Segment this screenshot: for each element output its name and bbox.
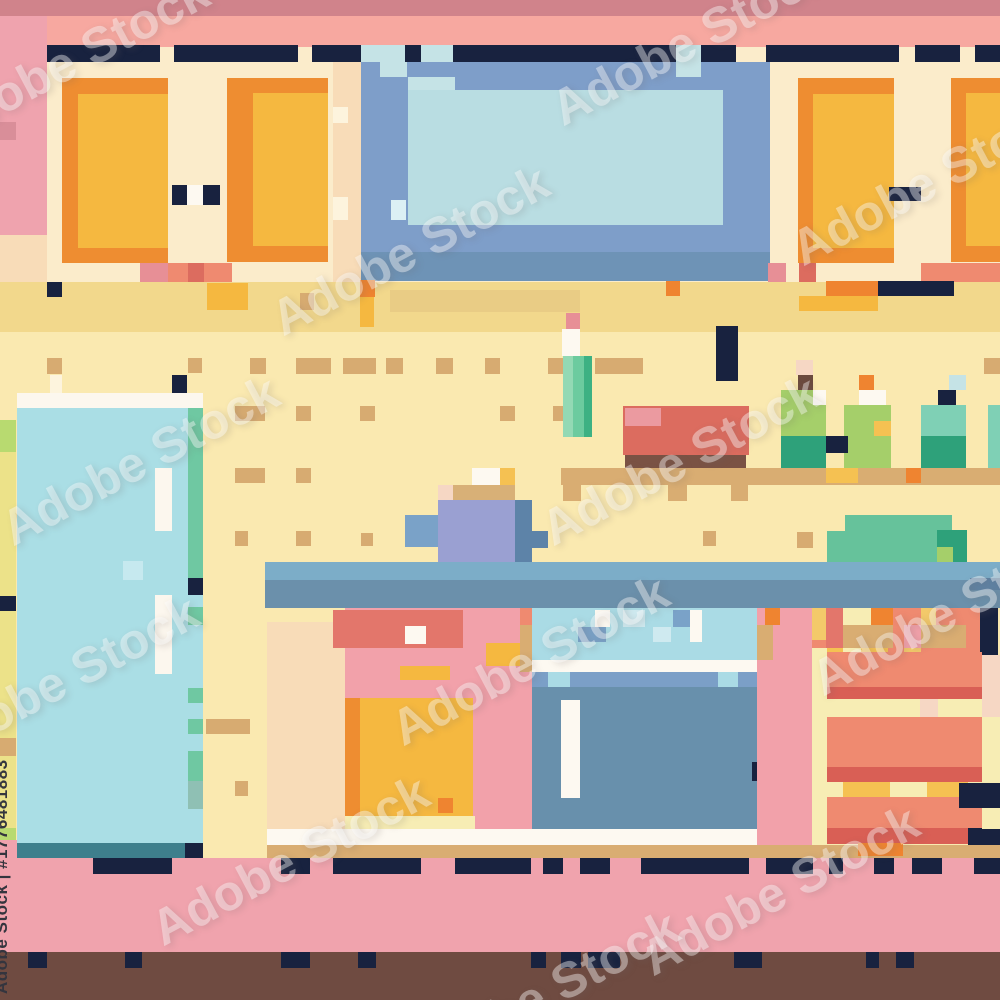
drawer-separator	[827, 699, 982, 717]
brick-dash	[386, 358, 403, 374]
pot-handle	[532, 531, 548, 548]
top-trim-dash	[453, 45, 676, 62]
counter-clutter	[843, 608, 871, 625]
drawer-edge	[827, 767, 982, 782]
left-strip-tan	[0, 738, 16, 756]
window-sill	[358, 252, 770, 281]
counter-clutter	[843, 625, 893, 648]
brick-dash	[436, 358, 453, 374]
shelf-jar-partial	[988, 405, 1000, 468]
band-accent	[666, 281, 680, 296]
drawer-unit-side-dark	[969, 829, 1000, 845]
stove-trim	[532, 660, 757, 672]
window-glass-shine	[391, 200, 406, 220]
window-tab	[361, 45, 405, 62]
brick-dash	[47, 358, 62, 374]
baseboard-dash	[974, 858, 1000, 874]
fridge-base-navy	[185, 843, 203, 858]
top-trim-dash	[975, 45, 1000, 62]
shelf-jar-highlight	[813, 390, 826, 405]
shelf-jar-cap	[938, 390, 956, 405]
counter-clutter	[921, 625, 966, 648]
brick-dash	[235, 781, 248, 796]
shelf-jar-label	[874, 421, 891, 436]
stock-id-watermark: Adobe Stock | #1776481883	[0, 759, 12, 994]
fridge-trim-gray	[188, 781, 203, 809]
floor-dash	[896, 952, 914, 968]
cabinet-door-panel	[966, 93, 1000, 246]
counter-top	[265, 562, 1000, 580]
stove-door-notch	[718, 672, 738, 687]
pot-lid	[453, 485, 515, 500]
wall-pillar-light	[333, 197, 348, 220]
counter-clutter	[921, 608, 936, 625]
floor-dash	[281, 952, 310, 968]
left-strip-lime	[0, 420, 16, 452]
pot-side-shade	[515, 500, 532, 562]
pink-cabinet-drawer	[333, 610, 463, 648]
wall-bottle-shade	[584, 356, 592, 437]
top-trim-dash	[405, 45, 421, 62]
baseboard-dash	[93, 858, 172, 874]
brick-dash	[235, 468, 265, 483]
cabinet-door-panel	[78, 94, 168, 248]
pink-cabinet-side	[267, 622, 345, 845]
shelf-jar-highlight	[859, 390, 886, 405]
brick-dash	[235, 406, 265, 421]
stove-knob	[673, 610, 690, 627]
cabinet-accent	[799, 263, 816, 282]
shelf-bracket	[731, 485, 748, 501]
pink-cabinet-accent	[486, 643, 520, 666]
coffee-machine-highlight	[625, 408, 661, 426]
cabinet-accent	[921, 263, 1000, 282]
fridge-trim	[188, 719, 203, 734]
pink-cabinet-door-notch	[438, 798, 453, 813]
drawer-unit-side	[982, 808, 1000, 829]
baseboard-dash	[874, 858, 894, 874]
cabinet-handle	[172, 185, 187, 205]
brick-dash	[206, 719, 250, 734]
counter-clutter	[790, 608, 812, 666]
top-trim-dash	[915, 45, 960, 62]
drawer	[827, 717, 982, 767]
bottle-cap	[562, 329, 580, 356]
stove-knob	[623, 610, 645, 627]
pink-cabinet-door-sill	[345, 816, 475, 829]
brick-dash	[235, 531, 248, 546]
counter-clutter-dark	[980, 608, 998, 655]
counter-clutter	[812, 608, 826, 640]
left-strip-navy	[0, 596, 16, 611]
wall-shelf-segment	[906, 468, 921, 483]
shelf-jar-cap	[859, 375, 874, 390]
drawer-edge	[827, 828, 968, 844]
floor-dash	[28, 952, 47, 968]
left-strip	[0, 332, 16, 420]
drawer-unit-frame	[812, 648, 827, 845]
band-accent	[300, 293, 314, 310]
band-accent	[360, 280, 375, 297]
pink-cabinet-accent	[400, 666, 450, 680]
brick-dash	[548, 358, 563, 374]
wall-shelf	[561, 468, 1000, 485]
shelf-jar-base	[781, 436, 826, 468]
baseboard-dash	[455, 858, 531, 874]
window-glass-step	[408, 77, 455, 90]
window-glass	[408, 90, 723, 225]
cabinet-handle	[187, 185, 203, 205]
top-trim-dash	[701, 45, 736, 62]
stove-knob	[578, 627, 606, 642]
stove-knob	[595, 610, 610, 627]
brick-dash	[797, 532, 813, 548]
drawer-edge	[827, 687, 982, 699]
pot-handle	[405, 515, 438, 547]
stove-door-handle	[561, 700, 580, 798]
top-trim-dash	[312, 45, 361, 62]
wall-dash-navy	[47, 282, 62, 297]
baseboard-dash	[912, 858, 942, 874]
wall-upper-band	[0, 16, 1000, 47]
window-tab	[380, 62, 407, 77]
pot-body	[438, 500, 515, 562]
drawer-separator-accent	[843, 782, 890, 797]
band-accent	[799, 296, 878, 311]
baseboard-dash	[829, 858, 843, 874]
cabinet-accent	[768, 263, 786, 282]
fridge-vent	[50, 375, 62, 393]
shelf-jar	[921, 405, 966, 436]
cabinet-handle	[203, 185, 220, 205]
shelf-bracket	[668, 485, 687, 501]
brick-dash	[500, 406, 515, 421]
wall-pillar-light	[333, 107, 348, 123]
drawer-unit-side-dark	[959, 783, 1000, 808]
shelf-jar-label-dark	[826, 436, 848, 453]
band-accent	[826, 281, 878, 296]
window-tab	[676, 45, 701, 77]
top-trim-dash	[766, 45, 899, 62]
floor-dash	[531, 952, 546, 968]
cabinet-accent	[188, 263, 204, 282]
window-tab	[421, 45, 453, 62]
baseboard-dash	[543, 858, 563, 874]
cabinet-accent	[204, 263, 232, 282]
wall-pillar	[333, 62, 361, 282]
fridge-trim	[188, 751, 203, 781]
coffee-machine-base	[625, 455, 746, 468]
cabinet-accent	[140, 263, 168, 282]
fridge-trim	[188, 408, 203, 578]
shelf-jar-cap	[798, 375, 813, 390]
counter-planter-lime	[937, 547, 953, 562]
stove-left-column	[520, 672, 532, 829]
pipe	[716, 326, 738, 381]
brick-dash	[188, 358, 202, 373]
stove-left-accent	[520, 608, 532, 625]
gap-accent	[757, 625, 773, 660]
left-wall-lower	[0, 235, 47, 282]
fridge-trim	[188, 688, 203, 703]
fridge-trim-navy	[188, 578, 203, 595]
top-trim-dash	[174, 45, 298, 62]
gap-accent	[765, 608, 780, 625]
wall-shelf-segment	[826, 468, 858, 483]
fridge-trim	[188, 607, 203, 625]
drawer-unit-side	[982, 717, 1000, 783]
shelf-jar-cap-top	[949, 375, 966, 390]
fridge-handle	[155, 595, 172, 674]
band-accent	[207, 283, 248, 310]
brick-dash	[360, 406, 375, 421]
cabinet-accent	[168, 263, 188, 282]
stove-door-notch	[548, 672, 570, 687]
left-wall-accent	[0, 122, 16, 140]
shelf-jar-base	[921, 436, 966, 468]
brick-dash	[703, 531, 716, 546]
counter-front	[265, 580, 1000, 608]
brick-dash	[296, 531, 311, 546]
floor-dash	[734, 952, 762, 968]
shelf-jar-cap-top	[796, 360, 813, 375]
band-shade	[390, 290, 580, 312]
band-accent	[360, 297, 374, 327]
cabinet-door-panel	[813, 94, 894, 248]
stove-knob	[690, 610, 702, 642]
top-trim-dash	[47, 45, 160, 62]
baseboard-dash	[580, 858, 610, 874]
bottle-cap	[566, 313, 580, 329]
brick-dash	[984, 358, 1000, 374]
wall-bottle-highlight	[563, 356, 573, 437]
brick-dash	[595, 358, 643, 374]
fridge-body	[17, 408, 203, 843]
stove-left-accent	[520, 625, 532, 672]
brick-dash	[296, 468, 311, 483]
shelf-jar	[844, 405, 891, 468]
floor	[0, 952, 1000, 1000]
floor-dash	[866, 952, 879, 968]
fridge-shine	[123, 561, 143, 580]
pink-cabinet-knob	[405, 626, 426, 644]
brick-dash	[343, 358, 376, 374]
floor-dash	[588, 952, 620, 968]
fridge-top	[17, 393, 203, 408]
stove-knob	[653, 627, 671, 642]
drawer	[827, 652, 982, 687]
fridge-dash	[172, 375, 187, 393]
base-orange-step	[858, 843, 903, 856]
drawer-separator-notch	[920, 699, 938, 717]
cabinet-handle	[889, 187, 921, 201]
wall-top-band	[0, 0, 1000, 16]
pink-cabinet-door-panel	[360, 698, 473, 816]
counter-planter	[845, 515, 952, 562]
fridge-base	[17, 843, 185, 858]
counter-shade	[970, 578, 1000, 590]
base-white-band	[267, 829, 781, 845]
cabinet-door-panel	[253, 93, 328, 246]
brick-dash	[296, 406, 311, 421]
brick-dash	[361, 533, 373, 546]
brick-dash	[250, 358, 266, 374]
baseboard-dash	[766, 858, 813, 874]
floor-dash	[561, 952, 581, 968]
brick-dash	[485, 358, 500, 374]
floor-dash	[358, 952, 376, 968]
brick-dash	[296, 358, 331, 374]
pixel-art-kitchen-scene: Adobe StockAdobe StockAdobe StockAdobe S…	[0, 0, 1000, 1000]
baseboard-dash	[333, 858, 421, 874]
floor-dash	[125, 952, 142, 968]
shelf-bracket	[563, 485, 581, 501]
baseboard-dash	[281, 858, 310, 874]
baseboard-dash	[641, 858, 749, 874]
fridge-handle	[155, 468, 172, 531]
counter-planter-step	[827, 531, 845, 562]
